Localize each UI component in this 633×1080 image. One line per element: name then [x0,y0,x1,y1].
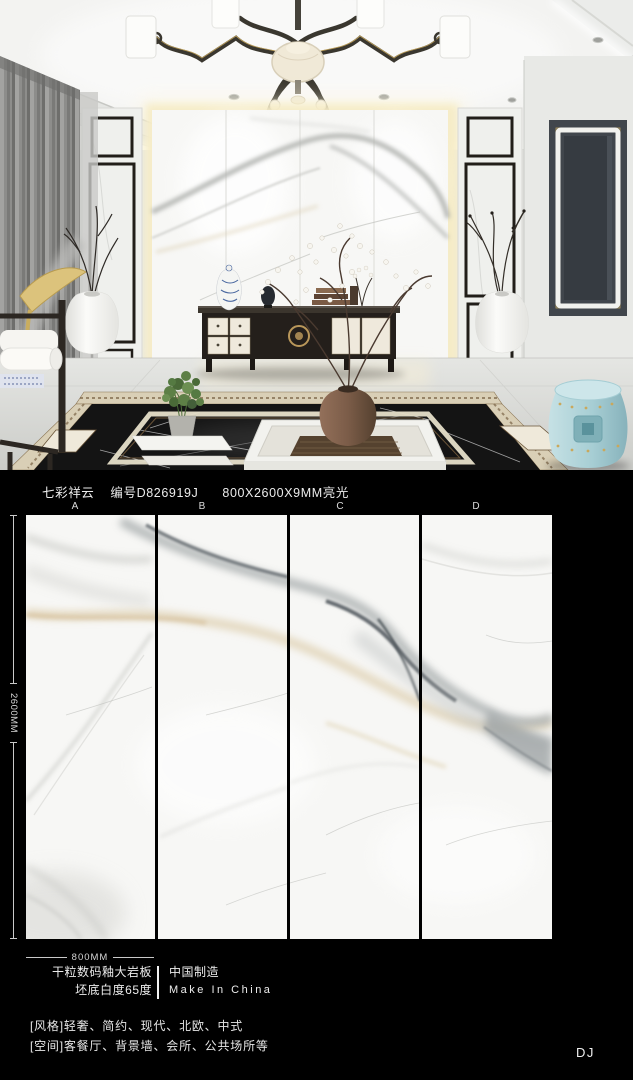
height-dim-line-bottom [13,742,14,939]
poster-page: 七彩祥云编号D826919J800X2600X9MM亮光 A B C D [0,0,633,1080]
spec-whiteness: 坯底白度65度 [26,981,152,999]
showroom-scene-svg [0,0,633,470]
width-dim-line-right [113,957,154,958]
slab-label-b: B [195,501,209,512]
height-dim-tick [10,683,17,684]
height-dim-tick [10,938,17,939]
product-name: 七彩祥云 [42,486,94,500]
width-dim-row: 800MM [26,952,154,963]
width-dim-label: 800MM [72,952,109,963]
height-dim-tick [10,515,17,516]
dark-wall-panel [549,120,627,316]
drum-stool [546,380,630,470]
spec-divider [157,966,159,999]
brown-vase [320,385,377,446]
spec-origin-cn: 中国制造 [169,963,272,981]
slab-label-a: A [68,501,82,512]
spec-material: 干粒数码釉大岩板 [26,963,152,981]
slab-strip [26,515,552,939]
slab-label-d: D [469,501,483,512]
spec-origin-en: Make In China [169,981,272,999]
product-size: 800X2600X9MM亮光 [222,486,349,500]
style-tags-line: [风格]轻奢、简约、现代、北欧、中式 [30,1017,243,1034]
spec-right-column: 中国制造 Make In China [169,963,272,999]
height-dim-tick [10,742,17,743]
product-title-row: 七彩祥云编号D826919J800X2600X9MM亮光 [42,482,349,501]
slab-label-c: C [333,501,347,512]
showroom-scene [0,0,633,470]
space-tags-line: [空间]客餐厅、背景墙、会所、公共场所等 [30,1037,269,1054]
spec-left-column: 干粒数码釉大岩板 坯底白度65度 [26,963,152,999]
height-dim-line-top [13,515,14,683]
width-dim-line-left [26,957,67,958]
product-code: 编号D826919J [110,486,198,500]
height-dim-label: 2600MM [7,691,19,735]
brand-watermark: DJ [576,1045,595,1060]
